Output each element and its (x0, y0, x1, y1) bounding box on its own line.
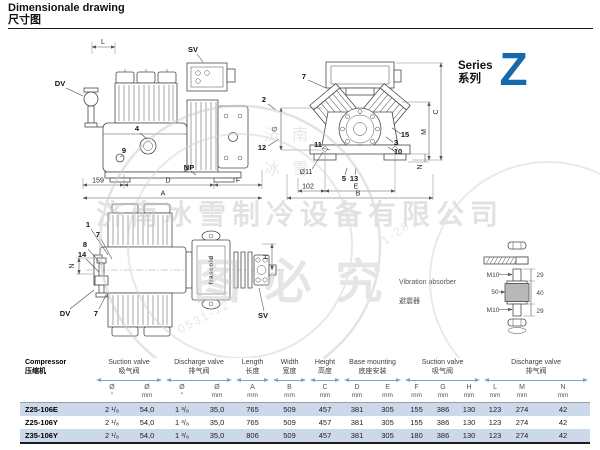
dim-label-d: D (165, 178, 170, 185)
dimension-line (312, 380, 338, 381)
d50-label: 50 (491, 289, 499, 296)
m10-bottom-label: M10 (487, 307, 500, 314)
watermark-char-1: 济 (264, 126, 280, 144)
table-row: Z25-106Y 2 ¹/₈54,0 1 ³/₈35,0 765509 4573… (20, 416, 590, 429)
col-group-discharge-valve: Discharge valve排气阀 (164, 356, 234, 377)
series-badge: Series 系列 Z (458, 52, 526, 86)
dimension-line (168, 380, 230, 381)
sv-label: SV (188, 45, 198, 54)
dim-label-m: M (421, 129, 428, 135)
callout-13: 13 (350, 174, 358, 183)
callout-7: 7 (302, 72, 306, 81)
datasheet-page: Dimensionale drawing 尺寸图 L SV (0, 0, 600, 450)
m10-top-label: M10 (487, 272, 500, 279)
callout-11: 11 (314, 140, 322, 149)
series-letter: Z (500, 52, 526, 86)
vibration-absorber-detail: M10 50 M10 29 40 29 Vibration absorber 避… (399, 242, 544, 334)
col-group-height: Height高度 (308, 356, 342, 377)
callout-5: 5 (342, 174, 346, 183)
callout-14: 14 (78, 250, 87, 259)
page-title: Dimensionale drawing 尺寸图 (8, 3, 593, 29)
d29-top-label: 29 (536, 272, 544, 279)
callout-8: 8 (83, 240, 87, 249)
callout-12: 12 (258, 143, 266, 152)
col-group-length: Length长度 (234, 356, 271, 377)
side-view-drawing: L SV (55, 39, 262, 198)
callout-7b: 7 (94, 309, 98, 318)
dim-label-102: 102 (302, 184, 314, 191)
dimension-line (346, 380, 399, 381)
col-group-compressor: Compressor压缩机 (20, 356, 94, 403)
unit-row: ″mm ″mm mmmm mmmm mmmm mmmm mmmm mm (20, 392, 590, 403)
model-cell: Z35-106Y (20, 429, 94, 443)
dim-label-n-top: N (69, 263, 76, 268)
dim-label-l: L (101, 39, 105, 46)
dimension-line (407, 380, 478, 381)
dimension-line (486, 380, 586, 381)
watermark-char-3: 冰 (264, 160, 280, 178)
dim-label-e: E (354, 184, 359, 191)
dim-label-159: 159 (92, 178, 104, 185)
callout-3: 3 (394, 138, 398, 147)
d40-label: 40 (536, 290, 544, 297)
dimension-line (238, 380, 267, 381)
model-cell: Z25-106Y (20, 416, 94, 429)
callout-1: 1 (86, 220, 90, 229)
dim-label-f: F (236, 178, 240, 185)
dimension-line (98, 380, 160, 381)
watermark-char-4: 雪 (292, 161, 308, 178)
series-label-zh: 系列 (458, 73, 493, 86)
table-row: Z25-106E 2 ¹/₈54,0 1 ³/₈35,0 765509 4573… (20, 403, 590, 417)
series-label-en: Series (458, 60, 493, 73)
col-group-width: Width宽度 (271, 356, 308, 377)
vibration-absorber-label-en: Vibration absorber (399, 279, 457, 286)
dimension-line (275, 380, 304, 381)
callout-9: 9 (122, 146, 126, 155)
front-view-drawing: 7 (258, 62, 443, 200)
title-zh: 尺寸图 (8, 14, 593, 26)
model-cell: Z25-106E (20, 403, 94, 417)
dim-label-b: B (356, 191, 361, 198)
sv-label-top: SV (258, 311, 268, 320)
col-group-discharge-valve-dims: Discharge valve排气阀 (482, 356, 590, 377)
d29-bottom-label: 29 (536, 308, 544, 315)
np-label: NP (184, 163, 194, 172)
dim-label-n-front: N (417, 164, 424, 169)
dv-label: DV (55, 79, 65, 88)
spec-table: Compressor压缩机 Suction valve吸气阀 Discharge… (20, 356, 590, 444)
col-group-suction-valve: Suction valve吸气阀 (94, 356, 164, 377)
dv-label-top: DV (60, 309, 70, 318)
symbol-row: ØØ ØØ AB CD EF GH LM N (20, 382, 590, 392)
col-group-suction-valve-dims: Suction valve吸气阀 (403, 356, 482, 377)
callout-2: 2 (262, 95, 266, 104)
title-en: Dimensionale drawing (8, 3, 593, 14)
callout-15: 15 (401, 130, 409, 139)
watermark-company: 济南冰雪制冷设备有限公司 (96, 199, 504, 230)
col-group-base-mounting: Base mounting底座安装 (342, 356, 403, 377)
watermark-char-2: 南 (292, 126, 308, 144)
dim-label-a: A (161, 191, 166, 198)
table-row: Z35-106Y 2 ¹/₈54,0 1 ³/₈35,0 806509 4573… (20, 429, 590, 443)
dim-label-c: C (433, 109, 440, 114)
